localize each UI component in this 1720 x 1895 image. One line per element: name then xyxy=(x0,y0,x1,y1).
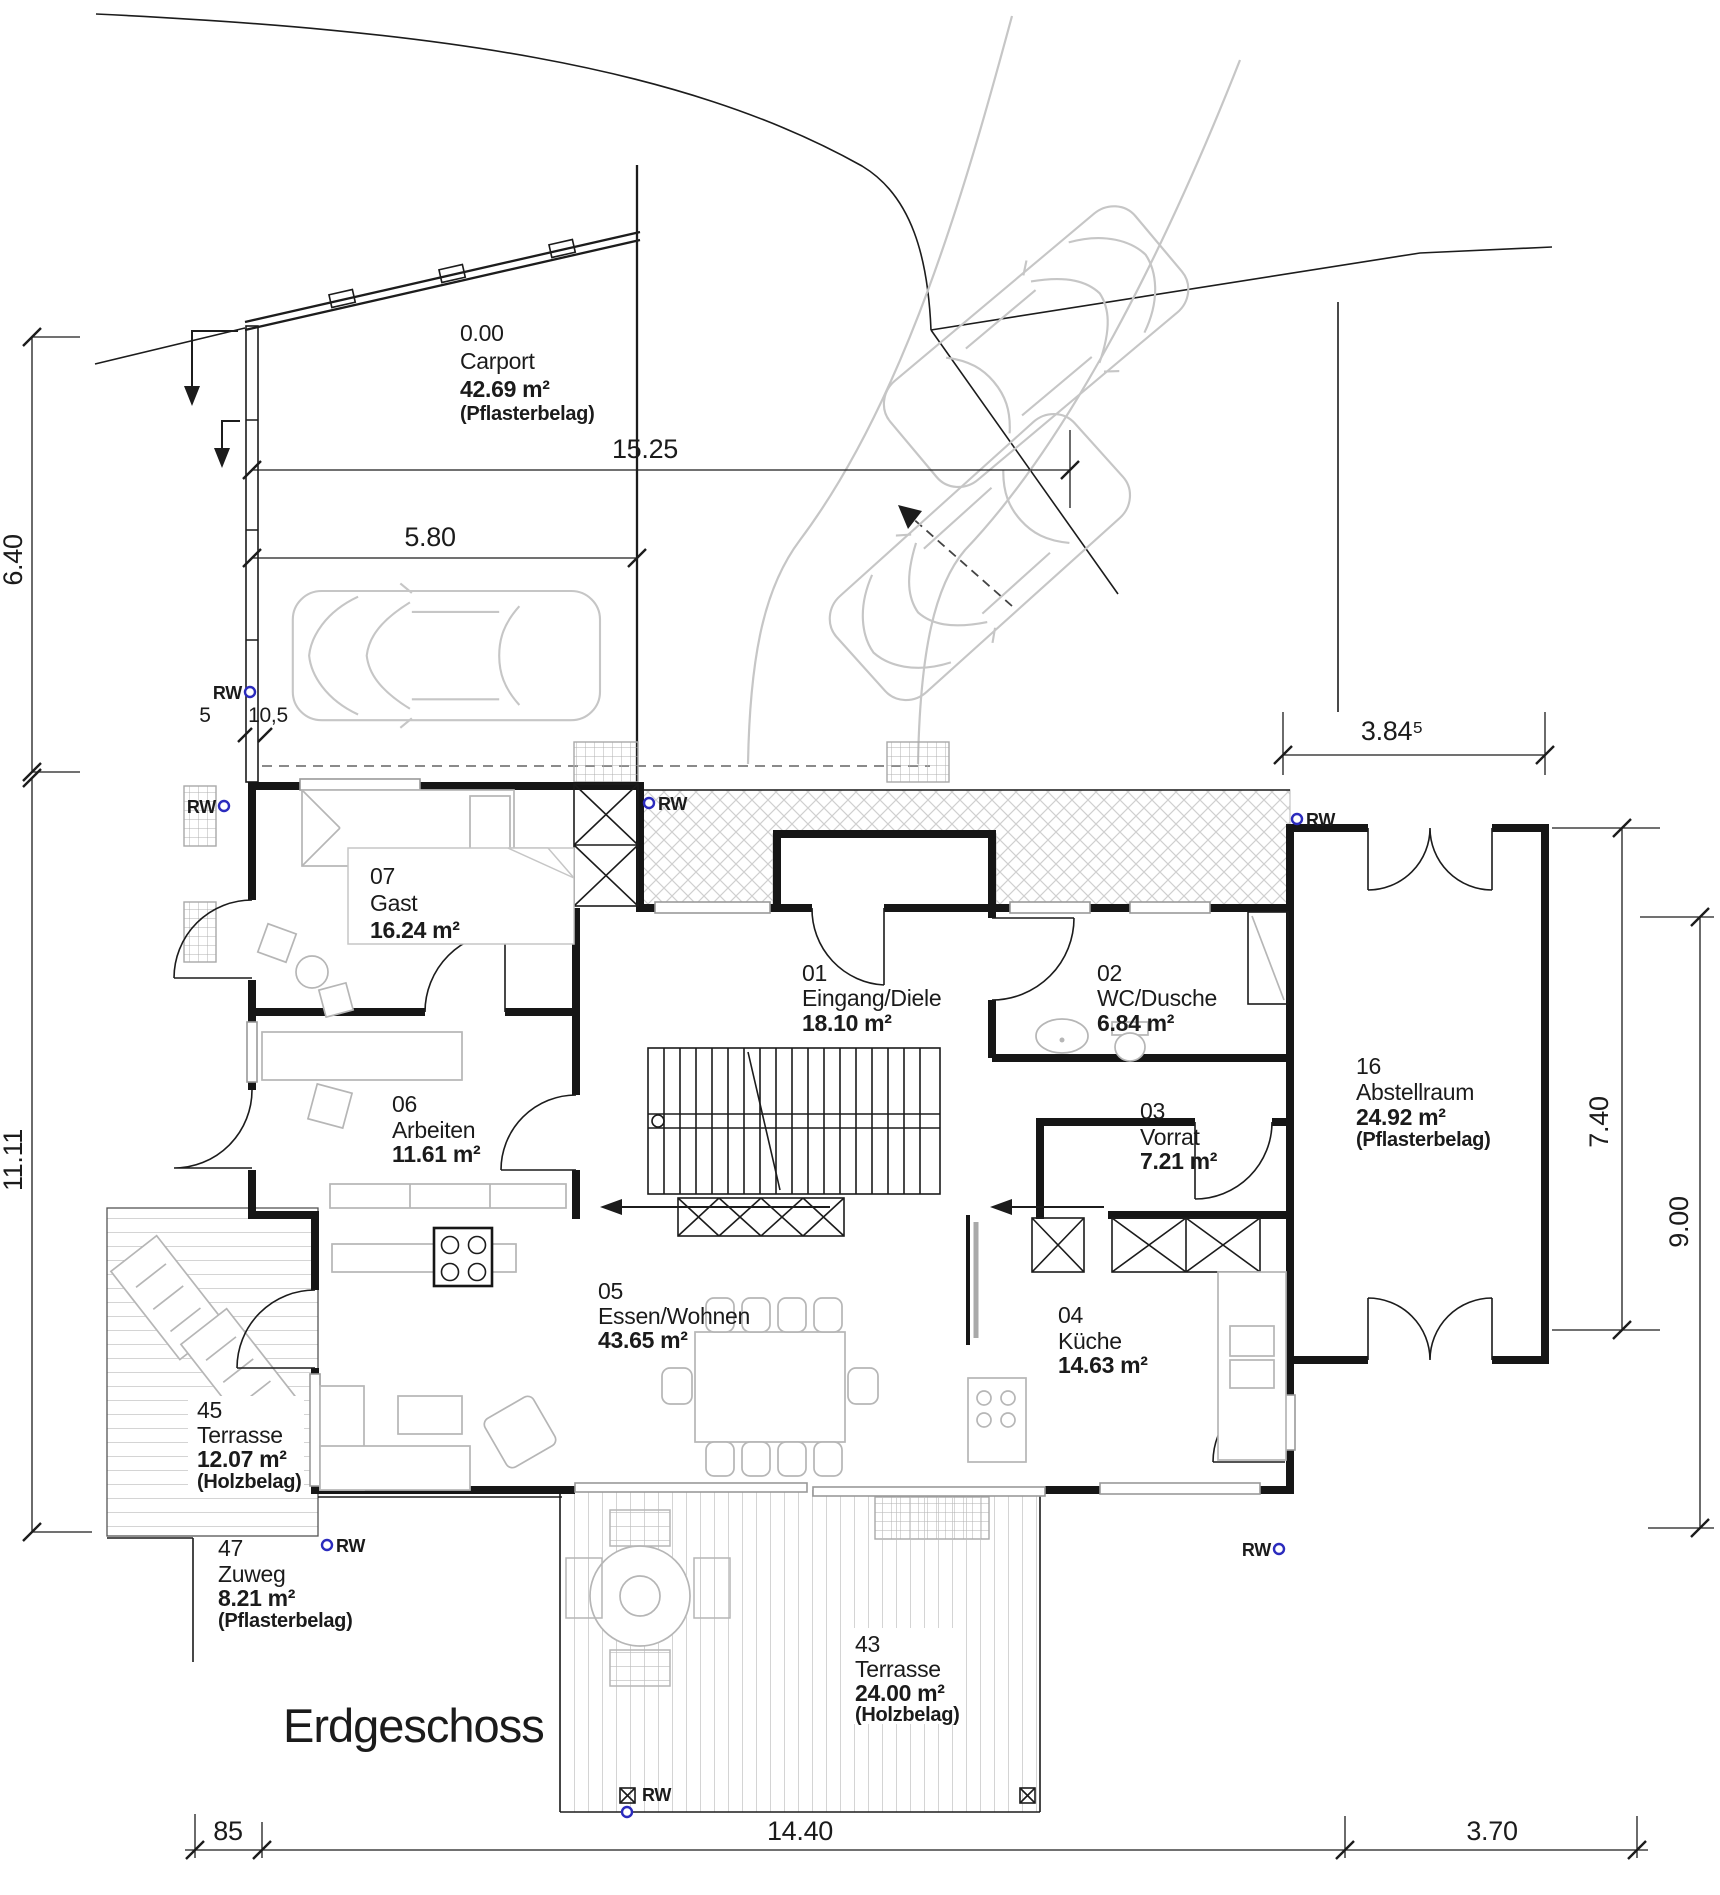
svg-text:01: 01 xyxy=(802,960,827,986)
window xyxy=(1130,902,1210,913)
car-icon-driveway-upper xyxy=(867,188,1205,504)
svg-text:Abstellraum: Abstellraum xyxy=(1356,1079,1474,1105)
svg-text:(Pflasterbelag): (Pflasterbelag) xyxy=(1356,1129,1490,1151)
toilet xyxy=(1115,1033,1145,1061)
room-label-zuweg: 47 Zuweg 8.21 m² (Pflasterbelag) xyxy=(218,1535,352,1632)
svg-text:0.00: 0.00 xyxy=(460,320,504,346)
rw-label: RW xyxy=(642,1785,671,1805)
room-label-gast: 07 Gast 16.24 m² xyxy=(348,848,574,944)
svg-text:Küche: Küche xyxy=(1058,1328,1122,1354)
dim-wall-b: 10,5 xyxy=(248,704,288,727)
floor-title: Erdgeschoss xyxy=(283,1699,544,1752)
paving-hatch xyxy=(640,790,1290,905)
svg-text:(Pflasterbelag): (Pflasterbelag) xyxy=(218,1610,352,1632)
window xyxy=(300,779,420,790)
window xyxy=(1100,1483,1260,1494)
room-label-abstellraum: 16 Abstellraum 24.92 m² (Pflasterbelag) xyxy=(1356,1053,1490,1151)
dining-chair xyxy=(662,1368,692,1404)
terrace-table xyxy=(590,1546,690,1646)
svg-text:Essen/Wohnen: Essen/Wohnen xyxy=(598,1303,750,1329)
site-boundary xyxy=(95,14,1552,712)
desk xyxy=(262,1032,462,1080)
svg-text:Arbeiten: Arbeiten xyxy=(392,1117,475,1143)
rw-label: RW xyxy=(213,683,242,703)
fence-line xyxy=(95,328,245,364)
svg-text:7.21 m²: 7.21 m² xyxy=(1140,1148,1218,1174)
room-label-vorrat: 03 Vorrat 7.21 m² xyxy=(1140,1098,1218,1174)
chair xyxy=(319,983,353,1017)
svg-text:24.92 m²: 24.92 m² xyxy=(1356,1104,1446,1130)
rw-label: RW xyxy=(658,794,687,814)
shelf xyxy=(330,1184,566,1208)
coffee-table xyxy=(398,1396,462,1434)
dim-right-inner: 7.40 xyxy=(1584,1096,1614,1147)
boundary-funnel-upper xyxy=(931,247,1552,330)
svg-text:8.21 m²: 8.21 m² xyxy=(218,1585,296,1611)
kitchen-counter xyxy=(1218,1272,1286,1460)
terrace-chair xyxy=(566,1558,602,1618)
sofa xyxy=(320,1446,470,1490)
door-storage-south xyxy=(1368,1298,1492,1360)
armchair xyxy=(482,1394,558,1470)
dim-storage-width: 3.84⁵ xyxy=(1361,716,1423,746)
window xyxy=(1010,902,1090,913)
door-storage-north xyxy=(1368,828,1492,890)
svg-text:02: 02 xyxy=(1097,960,1122,986)
stair-rail xyxy=(648,1114,940,1128)
understair-cabinet xyxy=(678,1198,844,1236)
svg-text:45: 45 xyxy=(197,1397,222,1423)
svg-text:42.69 m²: 42.69 m² xyxy=(460,376,550,402)
rw-drain-icon xyxy=(644,798,654,808)
rw-drain-icon xyxy=(245,687,255,697)
carport-structure xyxy=(245,165,640,782)
svg-text:47: 47 xyxy=(218,1535,243,1561)
dining-chair xyxy=(814,1298,842,1332)
driveway-curve-inner xyxy=(918,60,1240,764)
stair-start xyxy=(652,1115,664,1127)
chair xyxy=(258,924,296,962)
dining-chair xyxy=(778,1298,806,1332)
d im-bottom-center: 14.40 xyxy=(767,1816,833,1846)
terrace-chair xyxy=(694,1558,730,1618)
svg-text:14.63 m²: 14.63 m² xyxy=(1058,1352,1148,1378)
svg-text:Zuweg: Zuweg xyxy=(218,1561,286,1587)
washbasin xyxy=(1036,1019,1088,1053)
dim-site-width: 15.25 xyxy=(612,434,678,464)
svg-text:07: 07 xyxy=(370,863,395,889)
dining-chair xyxy=(814,1442,842,1476)
dim-wall-a: 5 xyxy=(199,704,210,727)
svg-text:12.07 m²: 12.07 m² xyxy=(197,1446,287,1472)
room-label-wc: 02 WC/Dusche 6.84 m² xyxy=(1097,960,1217,1036)
room-label-kueche: 04 Küche 14.63 m² xyxy=(1058,1302,1148,1378)
rw-drain-icon xyxy=(622,1807,632,1817)
svg-text:Vorrat: Vorrat xyxy=(1140,1124,1200,1150)
svg-text:43.65 m²: 43.65 m² xyxy=(598,1327,688,1353)
rw-label: RW xyxy=(187,797,216,817)
room-label-carport: 0.00 Carport 42.69 m² (Pflasterbelag) xyxy=(460,320,594,425)
dining-chair xyxy=(706,1442,734,1476)
carport-roof-edge xyxy=(245,232,640,330)
rw-drain-icon xyxy=(1292,814,1302,824)
car-icon-driveway-lower xyxy=(813,396,1147,717)
boundary-curve-top xyxy=(96,14,931,330)
svg-text:18.10 m²: 18.10 m² xyxy=(802,1010,892,1036)
svg-text:43: 43 xyxy=(855,1631,880,1657)
svg-text:Terrasse: Terrasse xyxy=(855,1656,941,1682)
dining-chair xyxy=(848,1368,878,1404)
door-arbeiten-west xyxy=(174,1090,252,1168)
rw-drain-icon xyxy=(322,1540,332,1550)
terrace-chair xyxy=(610,1650,670,1686)
grate-north-2 xyxy=(887,742,949,782)
floorplan-drawing: 15.25 5.80 6.40 11.11 3.84⁵ 7.40 9.00 85… xyxy=(0,0,1720,1895)
rw-drain-icon xyxy=(1274,1544,1284,1554)
svg-text:11.61 m²: 11.61 m² xyxy=(392,1141,481,1167)
svg-text:6.84 m²: 6.84 m² xyxy=(1097,1010,1175,1036)
grate-north-1 xyxy=(574,742,638,782)
terrace-chair xyxy=(610,1510,670,1546)
window-sliding xyxy=(575,1483,807,1492)
svg-text:Terrasse: Terrasse xyxy=(197,1422,283,1448)
dim-left-lower: 11.11 xyxy=(0,1129,28,1191)
side-table xyxy=(296,956,328,988)
dining-chair xyxy=(778,1442,806,1476)
svg-text:16.24 m²: 16.24 m² xyxy=(370,917,460,943)
svg-text:(Holzbelag): (Holzbelag) xyxy=(197,1471,301,1493)
arrow-left-icon xyxy=(600,1199,622,1215)
svg-text:03: 03 xyxy=(1140,1098,1165,1124)
dim-bottom-right: 3.70 xyxy=(1466,1816,1517,1846)
dim-left-upper: 6.40 xyxy=(0,534,28,585)
arrow-left-icon xyxy=(990,1199,1012,1215)
svg-text:Eingang/Diele: Eingang/Diele xyxy=(802,985,941,1011)
window xyxy=(247,1022,257,1082)
dining-table xyxy=(695,1332,845,1442)
rw-drain-icon xyxy=(219,801,229,811)
slope-arrow-icon xyxy=(214,448,230,468)
dining-chair xyxy=(742,1442,770,1476)
dim-right-outer: 9.00 xyxy=(1664,1196,1694,1247)
rw-label: RW xyxy=(1242,1540,1271,1560)
svg-text:16: 16 xyxy=(1356,1053,1381,1079)
svg-text:24.00 m²: 24.00 m² xyxy=(855,1680,945,1706)
rw-label: RW xyxy=(1306,810,1335,830)
window-sliding xyxy=(813,1487,1045,1496)
dim-carport-width: 5.80 xyxy=(404,522,455,552)
terrace-43 xyxy=(560,1490,1040,1812)
svg-text:Carport: Carport xyxy=(460,348,536,374)
svg-text:WC/Dusche: WC/Dusche xyxy=(1097,985,1217,1011)
svg-text:04: 04 xyxy=(1058,1302,1083,1328)
stairs xyxy=(600,1048,1104,1236)
porch-walls xyxy=(773,830,996,908)
window xyxy=(310,1374,320,1486)
entry-paving xyxy=(640,790,1290,905)
rw-label: RW xyxy=(336,1536,365,1556)
svg-text:Gast: Gast xyxy=(370,890,418,916)
drive-direction-line xyxy=(910,516,1012,606)
window xyxy=(655,902,770,913)
slope-arrow-icon xyxy=(184,386,200,406)
door-wc xyxy=(992,918,1074,1000)
car-icon-carport xyxy=(293,583,600,727)
door-arbeiten xyxy=(501,1095,576,1170)
svg-text:06: 06 xyxy=(392,1091,417,1117)
svg-text:(Pflasterbelag): (Pflasterbelag) xyxy=(460,403,594,425)
svg-text:05: 05 xyxy=(598,1278,623,1304)
floorplan-page: 15.25 5.80 6.40 11.11 3.84⁵ 7.40 9.00 85… xyxy=(0,0,1720,1895)
desk-chair xyxy=(308,1084,352,1128)
room-label-arbeiten: 06 Arbeiten 11.61 m² xyxy=(392,1091,481,1167)
svg-text:(Holzbelag): (Holzbelag) xyxy=(855,1704,959,1726)
driveway xyxy=(262,16,1240,766)
boundary-funnel-lower xyxy=(931,330,1118,594)
room-label-eingang: 01 Eingang/Diele 18.10 m² xyxy=(802,960,941,1036)
dim-bottom-left: 85 xyxy=(213,1816,242,1846)
